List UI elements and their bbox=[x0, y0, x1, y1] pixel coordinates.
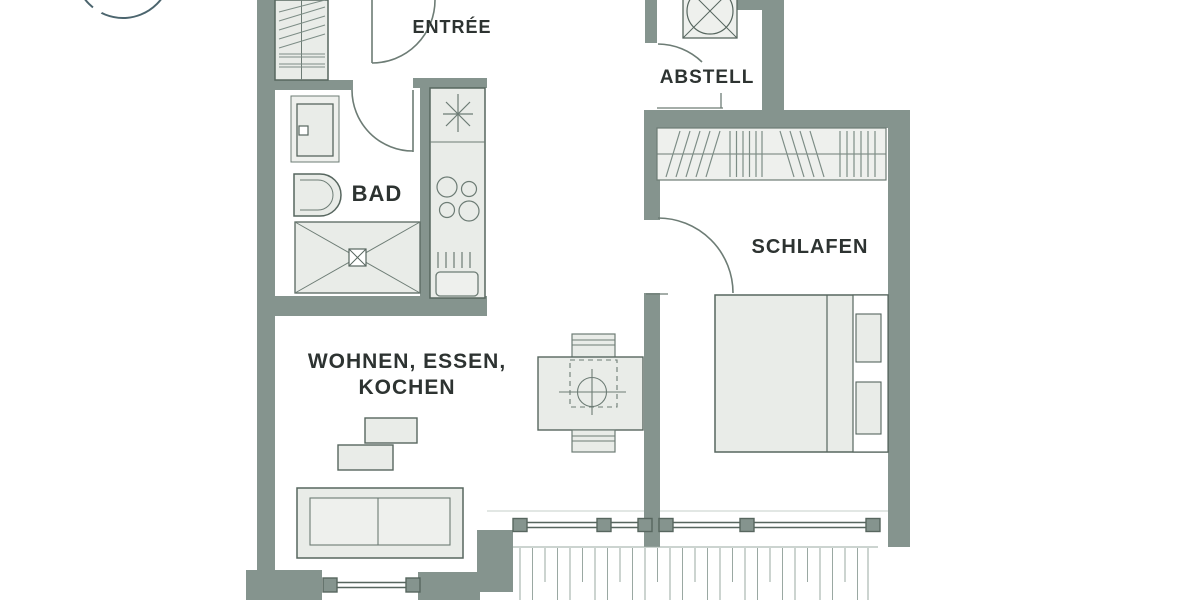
washing-machine-icon bbox=[683, 0, 737, 38]
wall-bath-top bbox=[275, 80, 353, 90]
dining-table bbox=[538, 357, 643, 430]
schlafen-door bbox=[646, 218, 733, 294]
wall-bath-bottom bbox=[257, 296, 487, 316]
wall-bath-kitchen-divider bbox=[420, 78, 430, 316]
wall-living-bedroom-lower bbox=[644, 293, 660, 547]
coffee-tables bbox=[338, 418, 417, 470]
wall-abstell-top-stub bbox=[737, 0, 762, 10]
balcony-decking bbox=[513, 547, 878, 600]
kitchen-unit bbox=[430, 88, 485, 298]
bath-door bbox=[352, 90, 413, 152]
wall-entree-abstell bbox=[645, 0, 657, 43]
label-bad: BAD bbox=[352, 181, 403, 206]
bedroom-window bbox=[659, 519, 880, 532]
floor-plan: ENTRÉE ABSTELL BAD SCHLAFEN WOHNEN, ESSE… bbox=[0, 0, 1200, 600]
wall-bottom-left-corner bbox=[246, 570, 322, 600]
wardrobe bbox=[657, 128, 886, 180]
small-window bbox=[323, 578, 420, 592]
shower-icon bbox=[295, 222, 420, 293]
pillow bbox=[856, 382, 881, 434]
wall-left-exterior bbox=[257, 0, 275, 572]
pillow bbox=[856, 314, 881, 362]
label-wohnen-line1: WOHNEN, ESSEN, bbox=[308, 350, 506, 373]
wall-bottom-segment bbox=[418, 572, 480, 600]
oven-icon bbox=[436, 272, 478, 296]
chair bbox=[572, 430, 615, 452]
washbasin-icon bbox=[291, 96, 339, 162]
label-abstell: ABSTELL bbox=[660, 67, 755, 88]
label-wohnen-line2: KOCHEN bbox=[358, 376, 455, 399]
dining-set bbox=[538, 334, 643, 452]
wall-schlafen-top bbox=[645, 110, 910, 128]
wall-right-exterior bbox=[888, 110, 910, 547]
chair bbox=[572, 334, 615, 358]
logo-circle-arc bbox=[75, 0, 171, 18]
wall-balcony-left-pier bbox=[477, 530, 513, 592]
toilet-icon bbox=[294, 174, 341, 216]
label-schlafen: SCHLAFEN bbox=[752, 236, 869, 258]
living-window bbox=[513, 519, 652, 532]
bed bbox=[715, 295, 888, 452]
entree-closet bbox=[275, 0, 328, 80]
label-entree: ENTRÉE bbox=[412, 16, 491, 37]
wall-abstell-right bbox=[762, 0, 784, 128]
sofa bbox=[297, 488, 463, 558]
